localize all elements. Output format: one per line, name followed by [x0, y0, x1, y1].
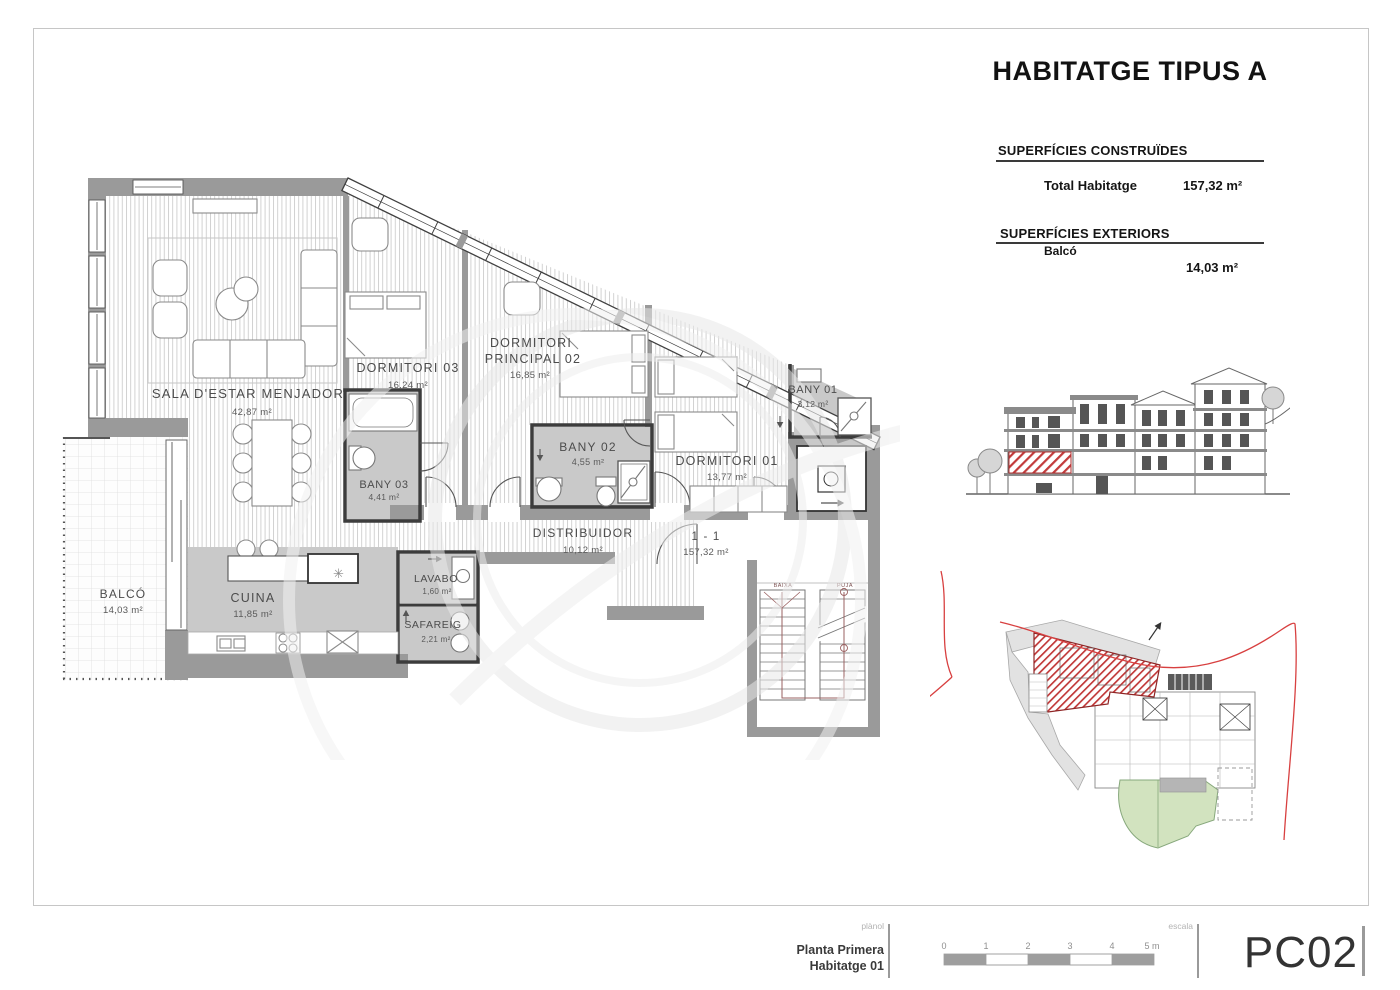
- label-dorm03: DORMITORI 03: [356, 361, 459, 375]
- area-bany01: 3,12 m²: [798, 399, 829, 409]
- plan-tag: plànol: [790, 921, 884, 931]
- area-lavabo: 1,60 m²: [422, 587, 451, 596]
- area-distribuidor: 10,12 m²: [563, 545, 603, 556]
- area-section-mark: 157,32 m²: [683, 547, 728, 558]
- site-key-plan: [930, 560, 1330, 860]
- area-dorm03: 16,24 m²: [388, 380, 428, 391]
- label-balco: BALCÓ: [100, 586, 147, 601]
- ext-surfaces-rule: [996, 242, 1264, 244]
- titleblock-divider-3: [1362, 926, 1365, 976]
- plan-name-line1: Planta Primera: [700, 942, 884, 958]
- area-bany03: 4,41 m²: [369, 492, 400, 502]
- extract-symbol-icon: ✳: [333, 566, 344, 581]
- label-bany03: BANY 03: [359, 479, 408, 491]
- scale-tick-2: 2: [1025, 941, 1030, 951]
- area-dorm01: 13,77 m²: [707, 472, 747, 483]
- area-cuina: 11,85 m²: [233, 609, 272, 620]
- label-safareig: SAFAREIG: [404, 619, 461, 631]
- label-dormp-2: PRINCIPAL 02: [485, 352, 581, 366]
- titleblock-divider: [888, 924, 890, 978]
- scale-tick-1: 1: [983, 941, 988, 951]
- scale-tick-3: 3: [1067, 941, 1072, 951]
- area-balco: 14,03 m²: [103, 605, 143, 616]
- ext-surfaces-label: Balcó: [1044, 244, 1077, 258]
- sheet-code: PC02: [1180, 928, 1358, 978]
- label-distribuidor: DISTRIBUIDOR: [533, 526, 633, 540]
- label-dormp-1: DORMITORI: [490, 336, 572, 350]
- floor-plan-drawing: ✳ BAIXA PUJA: [50, 160, 900, 760]
- plan-name: Planta Primera Habitatge 01: [700, 942, 884, 974]
- label-dorm01: DORMITORI 01: [675, 454, 778, 468]
- scale-tick-5: 5 m: [1144, 941, 1159, 951]
- label-cuina: CUINA: [231, 591, 276, 605]
- area-bany02: 4,55 m²: [572, 457, 605, 467]
- plan-name-line2: Habitatge 01: [700, 958, 884, 974]
- area-sala: 42,87 m²: [232, 407, 272, 418]
- north-arrow-icon: [1149, 624, 1160, 640]
- label-bany01: BANY 01: [788, 384, 837, 396]
- built-surfaces-value: 157,32 m²: [1183, 178, 1242, 193]
- scale-bar: 0 1 2 3 4 5 m: [930, 935, 1180, 975]
- label-lavabo: LAVABO: [414, 573, 458, 585]
- scale-tick-0: 0: [941, 941, 946, 951]
- built-surfaces-label: Total Habitatge: [1044, 178, 1137, 193]
- area-safareig: 2,21 m²: [421, 635, 450, 644]
- sheet-title: HABITATGE TIPUS A: [960, 56, 1300, 87]
- ext-surfaces-value: 14,03 m²: [1186, 260, 1238, 275]
- built-surfaces-heading: SUPERFÍCIES CONSTRUÏDES: [998, 143, 1188, 158]
- scale-tick-4: 4: [1109, 941, 1114, 951]
- area-dormp: 16,85 m²: [510, 370, 550, 381]
- label-bany02: BANY 02: [559, 440, 617, 454]
- balcony-sliding-door: [166, 440, 187, 630]
- highlighted-unit-section: [1009, 452, 1071, 473]
- built-surfaces-rule: [996, 160, 1264, 162]
- label-section-mark: 1 - 1: [691, 531, 720, 543]
- building-section-drawing: [960, 350, 1290, 510]
- label-sala: SALA D'ESTAR MENJADOR: [152, 386, 344, 401]
- ext-surfaces-heading: SUPERFÍCIES EXTERIORS: [1000, 226, 1170, 241]
